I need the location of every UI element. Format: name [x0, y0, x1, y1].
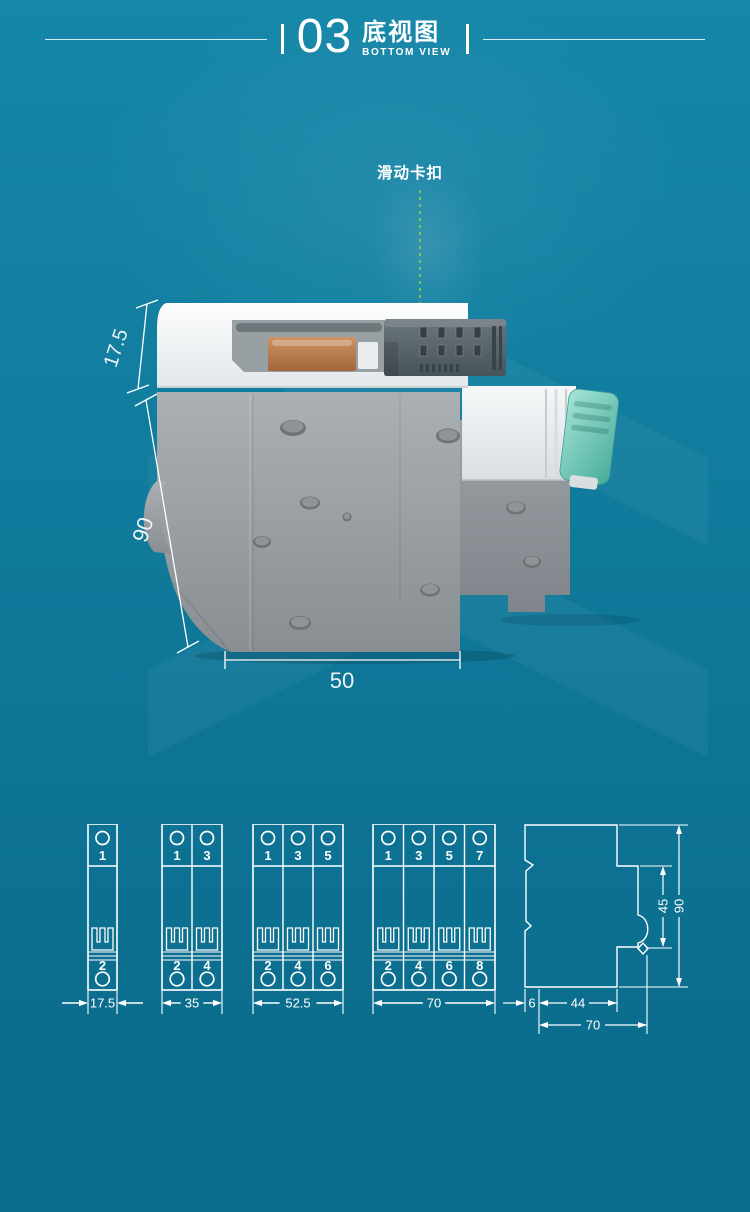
- sliding-clip: [384, 319, 506, 376]
- section-title: 底视图 BOTTOM VIEW: [362, 20, 451, 58]
- svg-text:7: 7: [476, 848, 483, 863]
- callout-label: 滑动卡扣: [330, 161, 490, 183]
- dim-label-45: 45: [656, 899, 671, 913]
- side-profile-arrowheads: [516, 825, 682, 1028]
- svg-text:2: 2: [173, 958, 180, 973]
- header-rule-left: [45, 39, 267, 40]
- side-profile-diagram: 6 44 70 45 90: [490, 824, 710, 1040]
- svg-text:6: 6: [324, 958, 331, 973]
- svg-text:5: 5: [446, 848, 453, 863]
- section-title-en: BOTTOM VIEW: [362, 47, 451, 58]
- svg-text:3: 3: [415, 848, 422, 863]
- dim-label-50: 50: [330, 668, 354, 693]
- svg-text:70: 70: [427, 996, 441, 1011]
- section-number: 03: [297, 13, 352, 61]
- header-bar-right: [466, 24, 469, 54]
- svg-text:1: 1: [385, 848, 392, 863]
- svg-text:17.5: 17.5: [90, 996, 115, 1011]
- svg-text:1: 1: [173, 848, 180, 863]
- dim-label-17-5: 17.5: [100, 326, 133, 370]
- section-header: 03 底视图 BOTTOM VIEW: [45, 12, 705, 66]
- product-render: 17.5 90 50: [100, 290, 660, 700]
- din-mount-column: [462, 386, 576, 480]
- dim-label-70: 70: [586, 1018, 600, 1033]
- svg-text:35: 35: [185, 996, 199, 1011]
- svg-text:5: 5: [324, 848, 331, 863]
- svg-text:8: 8: [476, 958, 483, 973]
- breaker-body-main: [144, 392, 460, 652]
- side-profile-outline: [525, 825, 648, 987]
- header-bar-left: [281, 24, 284, 54]
- svg-text:4: 4: [415, 958, 423, 973]
- header-rule-right: [483, 39, 705, 40]
- svg-text:3: 3: [203, 848, 210, 863]
- svg-text:3: 3: [294, 848, 301, 863]
- svg-text:2: 2: [264, 958, 271, 973]
- dim-label-90-side: 90: [672, 899, 687, 913]
- svg-text:2: 2: [99, 958, 106, 973]
- dim-label-6: 6: [528, 996, 535, 1011]
- svg-text:6: 6: [446, 958, 453, 973]
- svg-text:4: 4: [203, 958, 211, 973]
- svg-text:1: 1: [99, 848, 106, 863]
- svg-text:52.5: 52.5: [285, 996, 310, 1011]
- dim-label-44: 44: [571, 996, 585, 1011]
- svg-text:4: 4: [294, 958, 302, 973]
- section-title-cn: 底视图: [362, 20, 451, 45]
- product-detail-section: 03 底视图 BOTTOM VIEW 滑动卡扣: [0, 0, 750, 1212]
- svg-text:1: 1: [264, 848, 271, 863]
- svg-text:2: 2: [385, 958, 392, 973]
